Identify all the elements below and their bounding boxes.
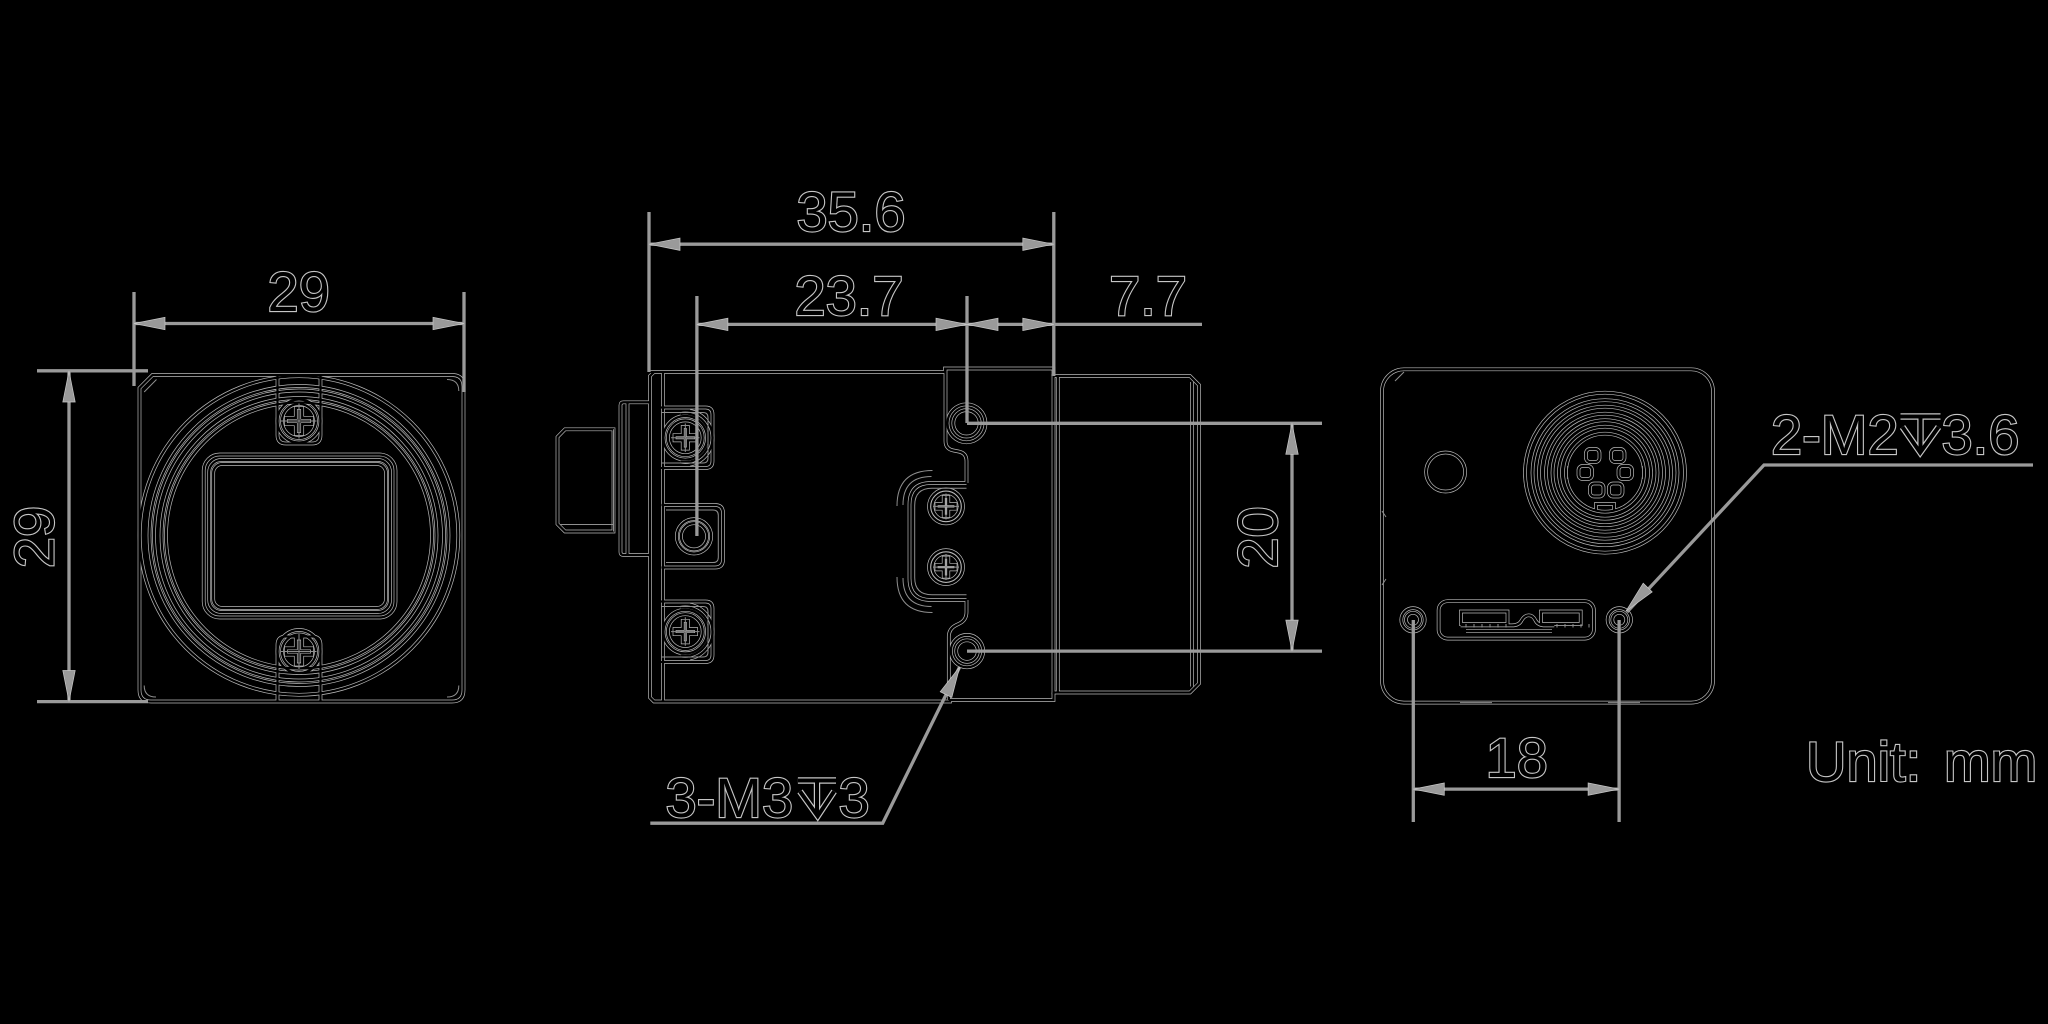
svg-text:35.6: 35.6 [797,180,906,243]
svg-text:2-M2: 2-M2 [1771,403,1899,466]
svg-text:29: 29 [268,260,330,323]
svg-text:29: 29 [3,506,66,568]
svg-text:mm: mm [1944,730,2037,793]
svg-text:7.7: 7.7 [1109,264,1187,327]
svg-text:18: 18 [1486,726,1548,789]
svg-text:3-M3: 3-M3 [666,766,794,829]
svg-text:23.7: 23.7 [795,264,904,327]
svg-text:20: 20 [1226,506,1289,568]
svg-text:3: 3 [839,766,870,829]
svg-text:Unit:: Unit: [1806,730,1921,793]
svg-text:3.6: 3.6 [1942,403,2020,466]
